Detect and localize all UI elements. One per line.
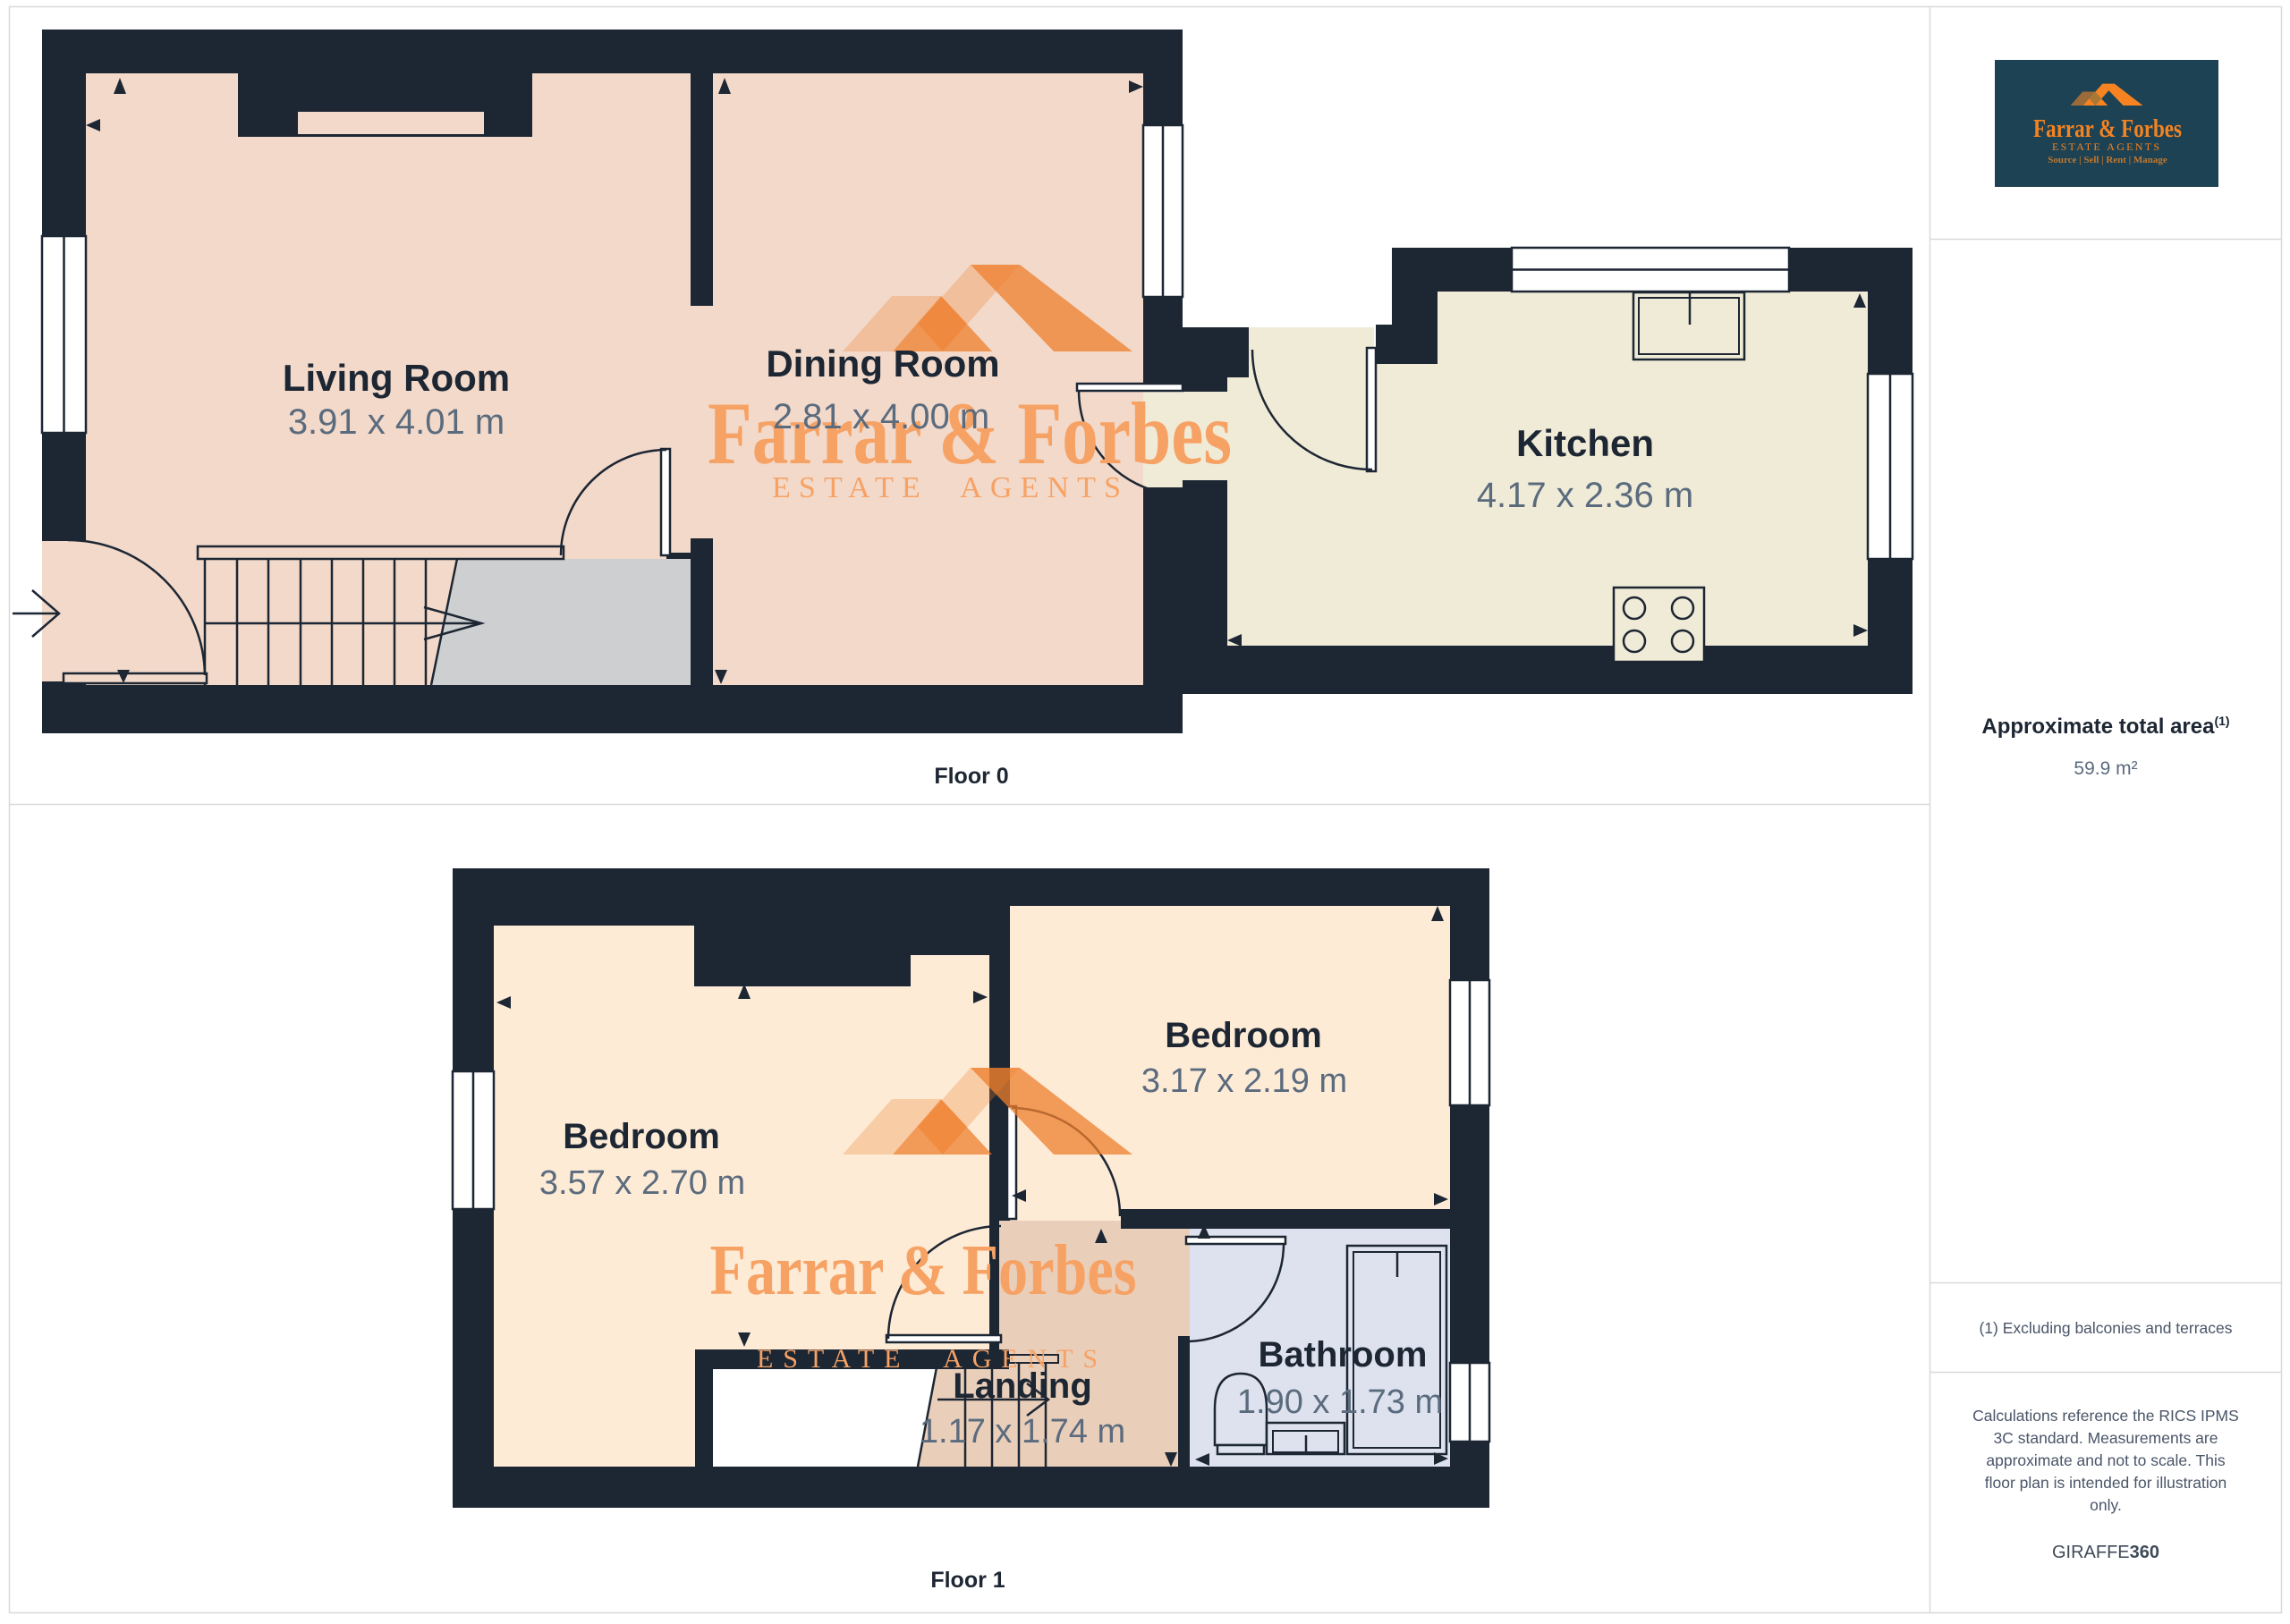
- svg-text:approximate and not to scale.: approximate and not to scale. This: [1986, 1451, 2225, 1469]
- svg-text:Bedroom: Bedroom: [563, 1117, 720, 1156]
- svg-text:Living Room: Living Room: [283, 357, 510, 399]
- svg-text:Farrar & Forbes: Farrar & Forbes: [2033, 115, 2182, 143]
- svg-text:Dining Room: Dining Room: [766, 343, 999, 385]
- svg-text:(1) Excluding balconies and te: (1) Excluding balconies and terraces: [1979, 1319, 2232, 1337]
- svg-text:3.17 x 2.19 m: 3.17 x 2.19 m: [1141, 1062, 1347, 1100]
- svg-text:Floor 1: Floor 1: [930, 1568, 1005, 1593]
- svg-text:Approximate total area(1): Approximate total area(1): [1981, 714, 2229, 739]
- svg-text:ESTATE AGENTS: ESTATE AGENTS: [772, 471, 1130, 504]
- svg-text:GIRAFFE360: GIRAFFE360: [2052, 1543, 2159, 1562]
- svg-text:ESTATE AGENTS: ESTATE AGENTS: [2052, 140, 2163, 153]
- svg-text:59.9 m²: 59.9 m²: [2074, 758, 2137, 779]
- svg-text:Bedroom: Bedroom: [1165, 1016, 1322, 1055]
- svg-text:3C standard. Measurements are: 3C standard. Measurements are: [1994, 1429, 2218, 1447]
- svg-text:3.91 x 4.01 m: 3.91 x 4.01 m: [288, 402, 505, 442]
- svg-text:Bathroom: Bathroom: [1259, 1335, 1428, 1374]
- svg-text:Farrar & Forbes: Farrar & Forbes: [710, 1230, 1137, 1310]
- svg-text:Calculations reference the RIC: Calculations reference the RICS IPMS: [1972, 1407, 2239, 1425]
- svg-text:4.17 x 2.36 m: 4.17 x 2.36 m: [1477, 476, 1693, 515]
- svg-text:1.90 x 1.73 m: 1.90 x 1.73 m: [1237, 1383, 1443, 1421]
- svg-text:1.17 x 1.74 m: 1.17 x 1.74 m: [920, 1413, 1125, 1451]
- svg-text:only.: only.: [2090, 1496, 2122, 1514]
- svg-text:Landing: Landing: [953, 1366, 1092, 1406]
- svg-text:3.57 x 2.70 m: 3.57 x 2.70 m: [539, 1164, 745, 1202]
- svg-text:2.81 x 4.00 m: 2.81 x 4.00 m: [773, 397, 989, 436]
- svg-text:floor plan is intended for ill: floor plan is intended for illustration: [1985, 1474, 2226, 1492]
- svg-text:Kitchen: Kitchen: [1516, 422, 1654, 464]
- svg-text:Floor 0: Floor 0: [934, 764, 1008, 789]
- svg-text:Source | Sell | Rent | Manage: Source | Sell | Rent | Manage: [2048, 155, 2167, 165]
